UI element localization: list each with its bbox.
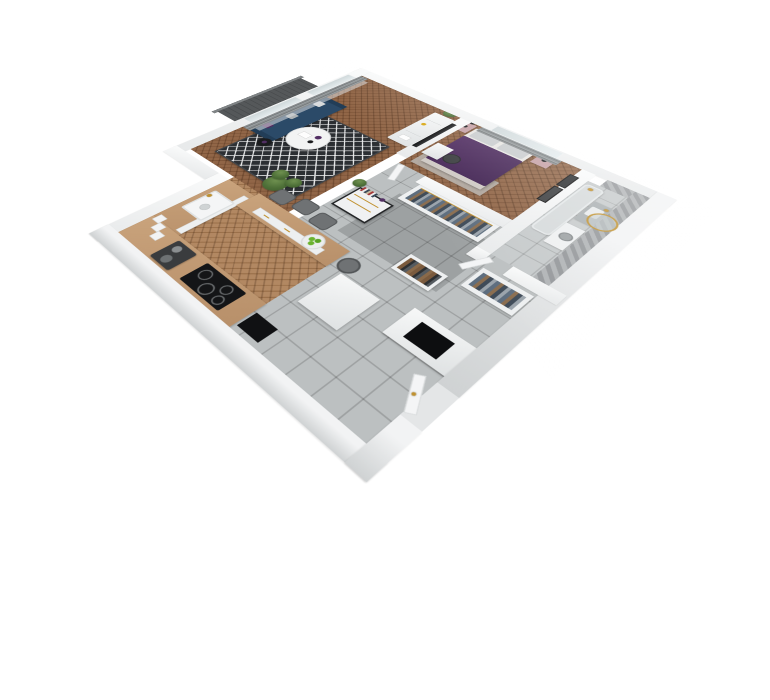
coffee-table-vase: [313, 135, 323, 140]
sink-faucet: [206, 193, 214, 197]
drawer-handle: [263, 215, 269, 219]
coffee-table-book: [297, 131, 312, 139]
washer-door: [556, 231, 576, 244]
coffee-table-bowl: [306, 140, 314, 144]
side-table-vase: [261, 140, 269, 144]
drawer-handle: [284, 228, 291, 232]
coffee-machine-plate: [158, 253, 175, 264]
cooktop-burner: [195, 268, 217, 282]
candle: [420, 122, 427, 125]
cooktop-burner: [208, 294, 227, 307]
apartment-plan: [14, 57, 720, 545]
sink-drain: [197, 202, 212, 211]
coffee-machine-dial: [170, 245, 185, 254]
console-vase: [378, 198, 387, 203]
shower-fixture: [587, 188, 594, 192]
entry-door-handle: [411, 392, 417, 397]
sideboard-books: [398, 134, 412, 141]
tv-sideboard-seam: [426, 119, 441, 126]
floorplan-stage: 3D isometric apartment floor plan render: [0, 0, 770, 700]
